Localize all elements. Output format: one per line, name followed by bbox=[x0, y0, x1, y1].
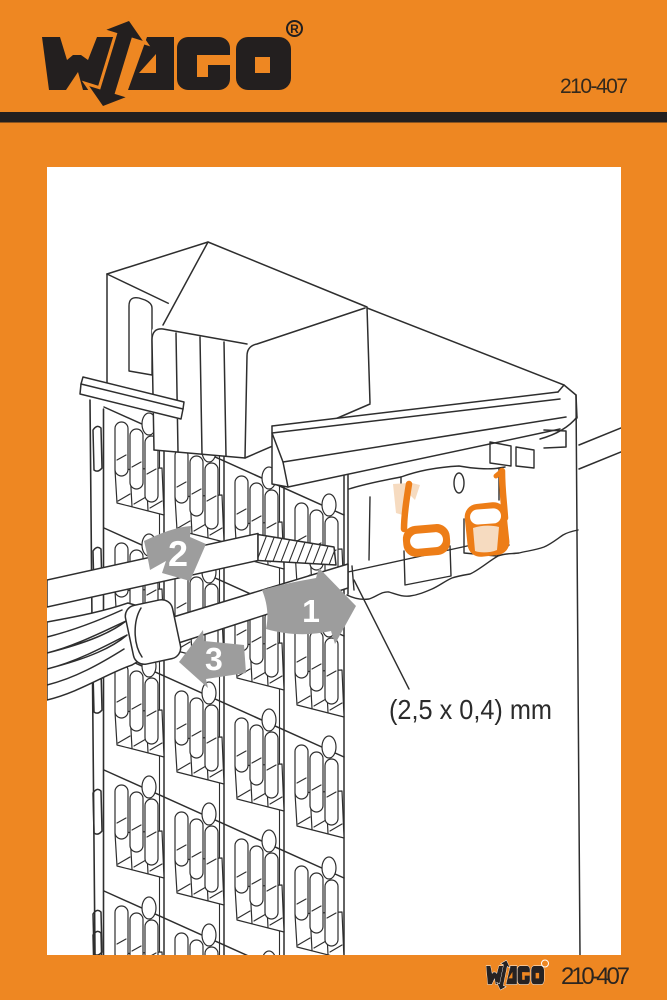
svg-text:2: 2 bbox=[168, 533, 188, 574]
svg-text:210-407: 210-407 bbox=[561, 963, 630, 990]
svg-text:R: R bbox=[290, 22, 299, 36]
svg-text:210-407: 210-407 bbox=[560, 75, 628, 98]
svg-text:1: 1 bbox=[302, 593, 320, 629]
svg-text:(2,5 x 0,4) mm: (2,5 x 0,4) mm bbox=[389, 694, 552, 725]
svg-text:3: 3 bbox=[205, 641, 223, 677]
